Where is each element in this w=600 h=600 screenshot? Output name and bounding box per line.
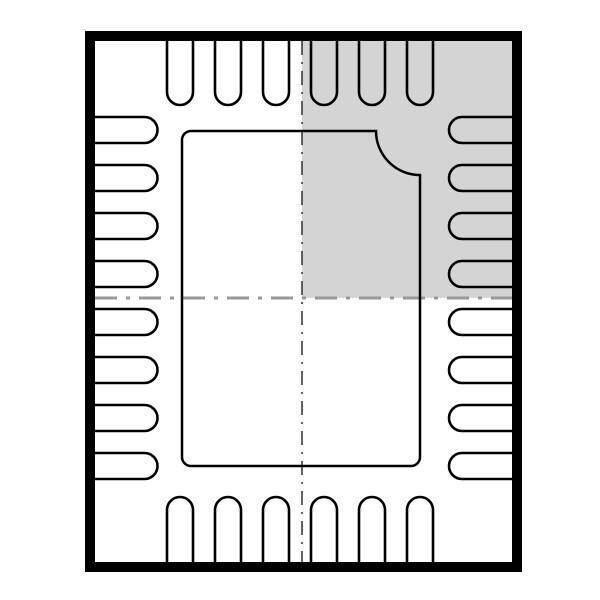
pin-right-6 — [449, 357, 512, 383]
pin-left-8 — [95, 453, 158, 479]
pin-right-7 — [449, 405, 512, 431]
pin-top-2 — [215, 41, 241, 105]
pin-bottom-1 — [167, 497, 193, 562]
qfn-package-drawing — [0, 0, 600, 600]
pin-left-1 — [95, 117, 158, 143]
pin-top-3 — [263, 41, 289, 105]
pin-bottom-6 — [407, 497, 433, 562]
pin-top-1 — [167, 41, 193, 105]
pin-left-6 — [95, 357, 158, 383]
pin-left-3 — [95, 213, 158, 239]
qfn-package-svg — [0, 0, 600, 600]
pin-left-5 — [95, 309, 158, 335]
pin-right-8 — [449, 453, 512, 479]
pin-bottom-5 — [359, 497, 385, 562]
pin-bottom-3 — [263, 497, 289, 562]
pin-left-7 — [95, 405, 158, 431]
pin-left-2 — [95, 165, 158, 191]
pin-bottom-2 — [215, 497, 241, 562]
pin-right-5 — [449, 309, 512, 335]
pin-bottom-4 — [311, 497, 337, 562]
pin-left-4 — [95, 261, 158, 287]
